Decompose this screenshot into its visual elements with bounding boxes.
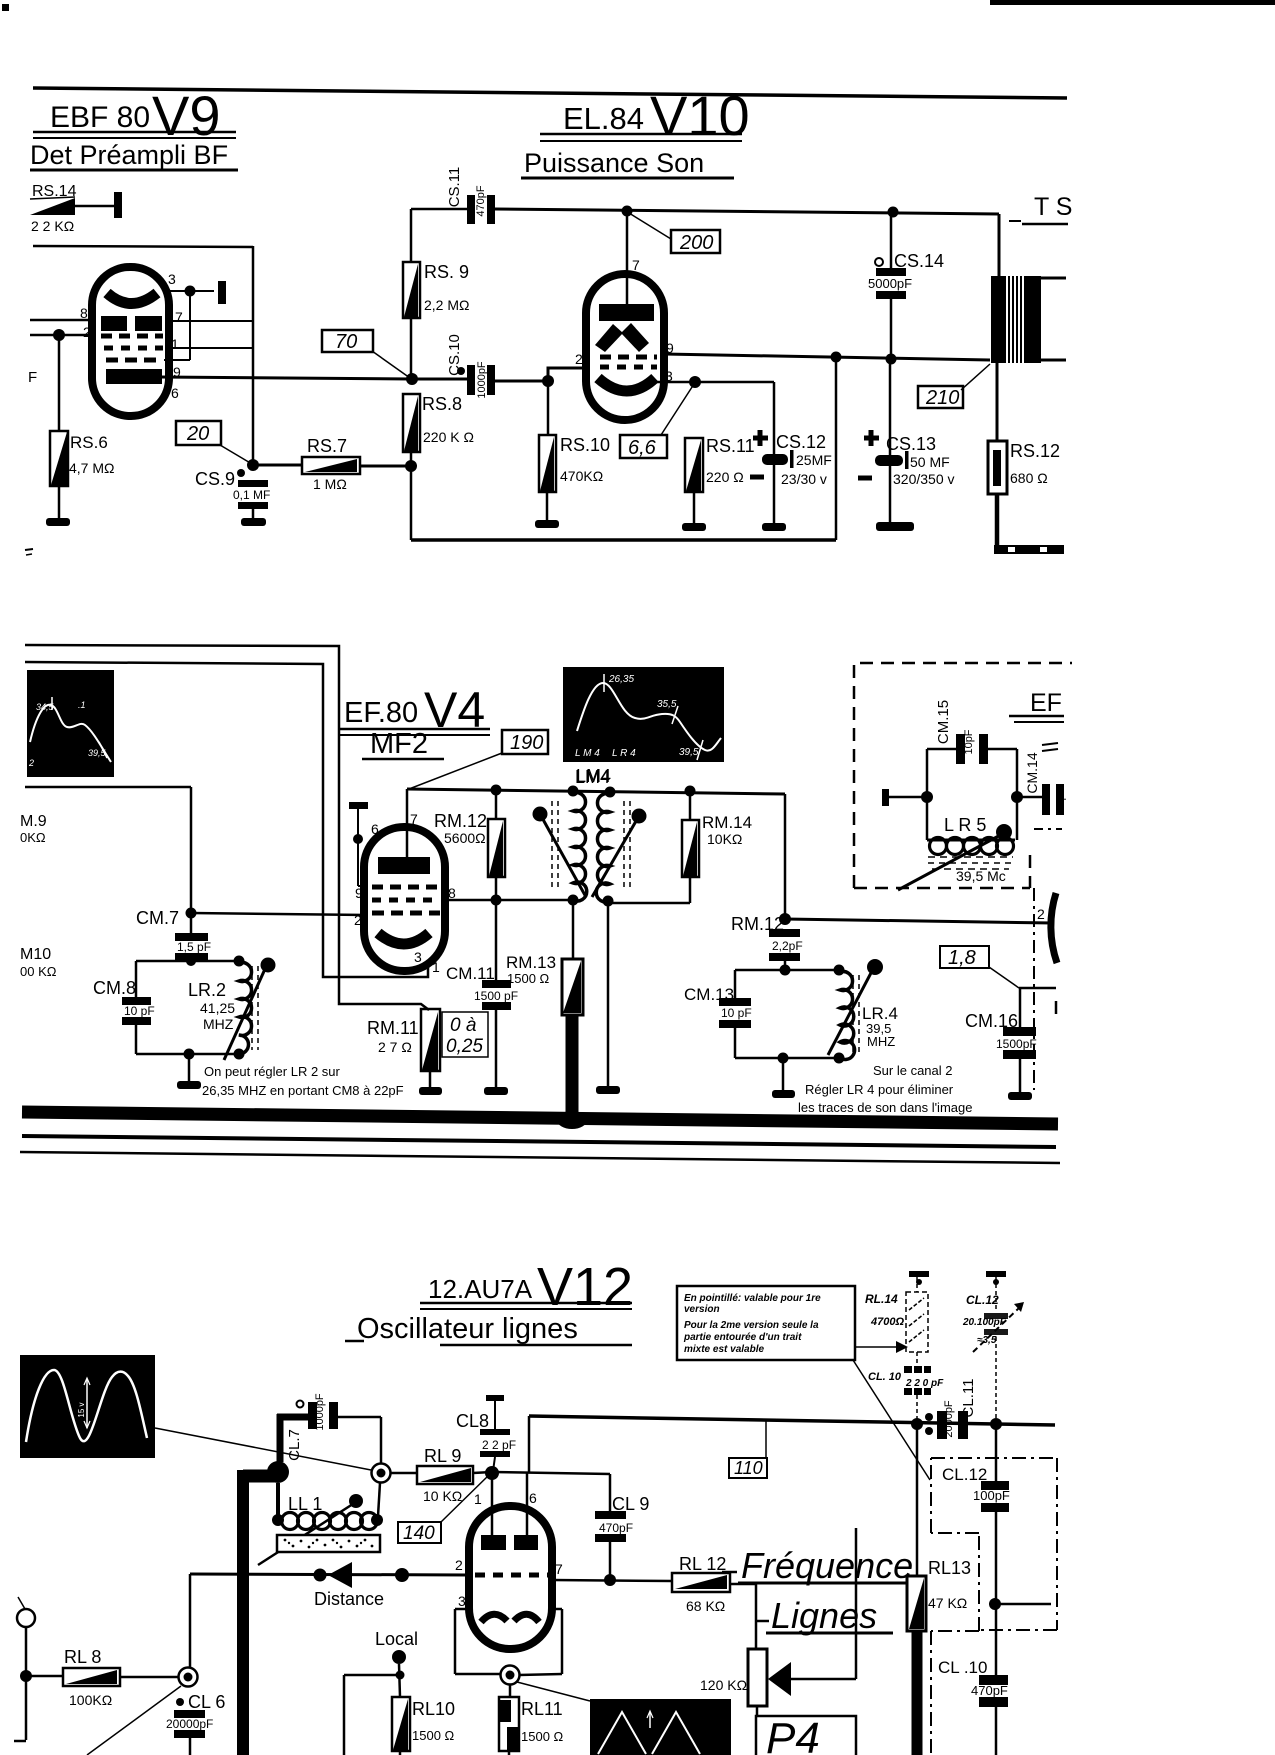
svg-text:7: 7 (175, 309, 183, 325)
svg-text:2 2 0 pF: 2 2 0 pF (905, 1378, 944, 1389)
svg-text:RM.14: RM.14 (702, 813, 752, 832)
svg-text:0 à: 0 à (450, 1015, 476, 1036)
svg-text:4700Ω: 4700Ω (870, 1316, 904, 1328)
svg-text:RL10: RL10 (412, 1699, 455, 1719)
svg-text:1 MΩ: 1 MΩ (313, 476, 347, 492)
svg-text:RS.10: RS.10 (560, 435, 610, 455)
svg-text:Régler LR 4 pour éliminer: Régler LR 4 pour éliminer (805, 1082, 954, 1097)
svg-text:41,25: 41,25 (200, 1000, 235, 1016)
svg-text:10KΩ: 10KΩ (707, 831, 742, 847)
svg-text:6: 6 (171, 385, 179, 401)
svg-text:10pF: 10pF (963, 729, 975, 754)
svg-text:2: 2 (455, 1557, 463, 1573)
svg-text:RM.12: RM.12 (434, 811, 487, 831)
svg-text:Lignes: Lignes (771, 1595, 877, 1636)
svg-text:34,5: 34,5 (36, 702, 55, 712)
svg-text:2 2 KΩ: 2 2 KΩ (31, 218, 74, 234)
svg-text:RM.11: RM.11 (367, 1018, 419, 1038)
svg-text:V10: V10 (650, 84, 750, 147)
svg-text:T S: T S (1034, 193, 1072, 221)
svg-text:35,5: 35,5 (657, 699, 677, 710)
svg-text:20000pF: 20000pF (166, 1717, 213, 1731)
svg-text:EF: EF (1030, 689, 1062, 717)
svg-text:Det Préampli BF: Det Préampli BF (30, 140, 228, 170)
svg-text:22pF: 22pF (1056, 789, 1067, 812)
svg-text:CM.14: CM.14 (1024, 752, 1040, 793)
svg-text:9: 9 (355, 885, 363, 901)
svg-text:8: 8 (80, 305, 88, 321)
svg-text:3: 3 (168, 271, 176, 287)
svg-text:les traces de son dans l: les traces de son dans l'image (798, 1100, 972, 1115)
svg-text:3: 3 (414, 949, 422, 965)
svg-text:mixte est valable: mixte est valable (684, 1344, 764, 1355)
svg-text:Pour la 2me version seule: Pour la 2me version seule la (684, 1320, 819, 1331)
svg-text:CL8: CL8 (456, 1411, 489, 1431)
svg-text:1000pF: 1000pF (314, 1393, 326, 1431)
svg-text:LM4: LM4 (576, 766, 611, 786)
svg-text:CM.8: CM.8 (93, 978, 136, 998)
svg-text:Sur le canal 2: Sur le canal 2 (873, 1063, 953, 1078)
svg-text:RL 9: RL 9 (424, 1446, 461, 1466)
svg-text:RS.7: RS.7 (307, 436, 347, 456)
svg-text:4,7 MΩ: 4,7 MΩ (69, 460, 114, 476)
svg-text:1500 Ω: 1500 Ω (412, 1728, 455, 1743)
svg-text:RS.11: RS.11 (706, 436, 755, 456)
svg-text:10 pF: 10 pF (124, 1004, 155, 1018)
svg-text:En pointillé: valable pour 1r: En pointillé: valable pour 1re (684, 1293, 821, 1304)
svg-text:25MF: 25MF (796, 452, 832, 468)
svg-text:L R 4: L R 4 (612, 748, 636, 759)
svg-text:470KΩ: 470KΩ (560, 468, 603, 484)
svg-text:EF.80: EF.80 (344, 697, 418, 729)
svg-text:47 KΩ: 47 KΩ (928, 1595, 967, 1611)
svg-text:RM.13: RM.13 (506, 953, 556, 972)
svg-text:CS.10: CS.10 (446, 334, 463, 376)
svg-text:320/350 v: 320/350 v (893, 471, 955, 487)
svg-text:470pF: 470pF (971, 1683, 1008, 1698)
svg-text:Oscillateur lignes: Oscillateur lignes (357, 1313, 578, 1345)
svg-text:12.AU7A: 12.AU7A (428, 1274, 533, 1304)
svg-text:70: 70 (335, 331, 357, 353)
svg-text:CS.9: CS.9 (195, 469, 235, 489)
svg-text:2: 2 (575, 351, 583, 367)
svg-text:39,5: 39,5 (88, 748, 107, 758)
svg-text:RS. 9: RS. 9 (424, 262, 469, 282)
svg-text:version: version (684, 1304, 720, 1315)
svg-text:partie entourée d'un trait: partie entourée d'un trait (683, 1332, 802, 1343)
svg-text:M.9: M.9 (20, 813, 47, 830)
svg-text:P4: P4 (766, 1714, 820, 1755)
svg-text:M10: M10 (20, 946, 51, 963)
svg-text:50 MF: 50 MF (910, 454, 950, 470)
svg-text:2,2pF: 2,2pF (772, 939, 803, 953)
svg-text:Distance: Distance (314, 1589, 384, 1609)
svg-text:On peut régler LR 2 sur: On peut régler LR 2 sur (204, 1064, 341, 1079)
svg-text:MHZ: MHZ (203, 1016, 234, 1032)
svg-text:0KΩ: 0KΩ (20, 830, 46, 845)
svg-text:CL.12: CL.12 (942, 1465, 987, 1484)
svg-text:10 pF: 10 pF (721, 1006, 752, 1020)
svg-text:15 v: 15 v (77, 1402, 86, 1417)
svg-text:7: 7 (632, 257, 640, 273)
svg-text:L R 5: L R 5 (944, 815, 986, 835)
svg-text:200: 200 (679, 232, 713, 254)
svg-text:470pF: 470pF (599, 1521, 633, 1535)
svg-text:RL.14: RL.14 (865, 1292, 898, 1306)
svg-text:Fréquence: Fréquence (741, 1545, 913, 1586)
svg-text:220 Ω: 220 Ω (706, 469, 744, 485)
svg-text:2: 2 (354, 912, 362, 928)
svg-text:0,1 MF: 0,1 MF (233, 488, 270, 502)
svg-text:Local: Local (375, 1629, 418, 1649)
svg-text:1: 1 (474, 1491, 482, 1507)
svg-text:39,5 Mc: 39,5 Mc (956, 868, 1006, 884)
svg-text:CM.15: CM.15 (935, 700, 952, 744)
svg-text:2: 2 (1037, 906, 1045, 922)
svg-text:2: 2 (83, 324, 91, 340)
svg-text:110: 110 (734, 1458, 763, 1478)
svg-text:1500 pF: 1500 pF (474, 989, 518, 1003)
svg-text:680 Ω: 680 Ω (1010, 470, 1048, 486)
svg-text:140: 140 (403, 1523, 435, 1544)
svg-text:2 7 Ω: 2 7 Ω (378, 1039, 412, 1055)
svg-text:470pF: 470pF (475, 185, 487, 216)
svg-text:23/30 v: 23/30 v (781, 471, 827, 487)
svg-text:1500pF: 1500pF (996, 1037, 1037, 1051)
svg-text:20: 20 (186, 423, 209, 445)
svg-text:26,35: 26,35 (608, 674, 634, 685)
svg-text:EL.84: EL.84 (563, 101, 644, 136)
svg-text:RL13: RL13 (928, 1558, 971, 1578)
svg-text:CL.11: CL.11 (960, 1379, 977, 1418)
svg-text:RL11: RL11 (521, 1699, 563, 1719)
svg-text:.1: .1 (78, 700, 86, 710)
svg-text:100KΩ: 100KΩ (69, 1692, 112, 1708)
svg-text:RS.8: RS.8 (422, 394, 462, 414)
svg-text:8: 8 (548, 1593, 556, 1609)
svg-text:6,6: 6,6 (628, 437, 657, 459)
svg-text:1000pF: 1000pF (476, 361, 488, 399)
svg-text:5600Ω: 5600Ω (444, 830, 486, 846)
svg-text:0,25: 0,25 (446, 1036, 483, 1057)
svg-text:68 KΩ: 68 KΩ (686, 1598, 725, 1614)
svg-text:CL .10: CL .10 (938, 1658, 987, 1677)
svg-text:2 2 pF: 2 2 pF (482, 1438, 516, 1452)
svg-text:RS.6: RS.6 (70, 433, 108, 452)
svg-text:≈3,5: ≈3,5 (977, 1335, 997, 1346)
svg-text:210: 210 (925, 387, 959, 409)
svg-text:CL. 10: CL. 10 (868, 1371, 902, 1383)
svg-text:7: 7 (555, 1561, 563, 1577)
svg-text:CL 6: CL 6 (188, 1692, 225, 1712)
svg-text:2,2 MΩ: 2,2 MΩ (424, 297, 469, 313)
svg-text:190: 190 (510, 732, 543, 754)
svg-text:Puissance Son: Puissance Son (524, 148, 704, 178)
svg-text:EBF 80: EBF 80 (50, 101, 150, 134)
svg-text:220 K Ω: 220 K Ω (423, 429, 474, 445)
svg-text:L M 4: L M 4 (575, 748, 600, 759)
svg-text:6: 6 (371, 821, 379, 837)
svg-text:1: 1 (432, 959, 440, 975)
svg-text:100pF: 100pF (973, 1488, 1010, 1503)
svg-text:1,5 pF: 1,5 pF (177, 940, 211, 954)
svg-text:1500 Ω: 1500 Ω (521, 1729, 564, 1744)
svg-text:00 KΩ: 00 KΩ (20, 964, 57, 979)
svg-text:CS.11: CS.11 (446, 167, 463, 208)
svg-text:F: F (28, 369, 37, 386)
svg-text:CL.12: CL.12 (966, 1293, 999, 1307)
svg-text:3: 3 (458, 1593, 466, 1609)
svg-text:CS.13: CS.13 (886, 434, 936, 454)
svg-text:MF2: MF2 (370, 728, 428, 760)
svg-text:2000pF: 2000pF (943, 1400, 955, 1438)
svg-text:RL 8: RL 8 (64, 1647, 101, 1667)
svg-text:39,5: 39,5 (679, 747, 699, 758)
svg-text:RL 12: RL 12 (679, 1554, 726, 1574)
svg-text:7: 7 (410, 811, 418, 827)
svg-text:120 KΩ: 120 KΩ (700, 1677, 747, 1693)
svg-text:10 KΩ: 10 KΩ (423, 1488, 462, 1504)
svg-text:1: 1 (171, 336, 179, 352)
svg-text:RS.12: RS.12 (1010, 441, 1060, 461)
svg-text:5000pF: 5000pF (868, 276, 912, 291)
svg-text:CM.7: CM.7 (136, 908, 179, 928)
svg-text:CS.12: CS.12 (776, 432, 826, 452)
svg-text:LR.2: LR.2 (188, 980, 226, 1000)
svg-text:8: 8 (448, 885, 456, 901)
svg-text:26,35 MHZ en portant CM8 à 2: 26,35 MHZ en portant CM8 à 22pF (202, 1083, 404, 1098)
svg-text:1500 Ω: 1500 Ω (507, 971, 550, 986)
svg-text:MHZ: MHZ (867, 1034, 895, 1049)
svg-text:2: 2 (28, 758, 34, 768)
svg-text:6: 6 (529, 1490, 537, 1506)
svg-text:1,8: 1,8 (948, 947, 976, 969)
